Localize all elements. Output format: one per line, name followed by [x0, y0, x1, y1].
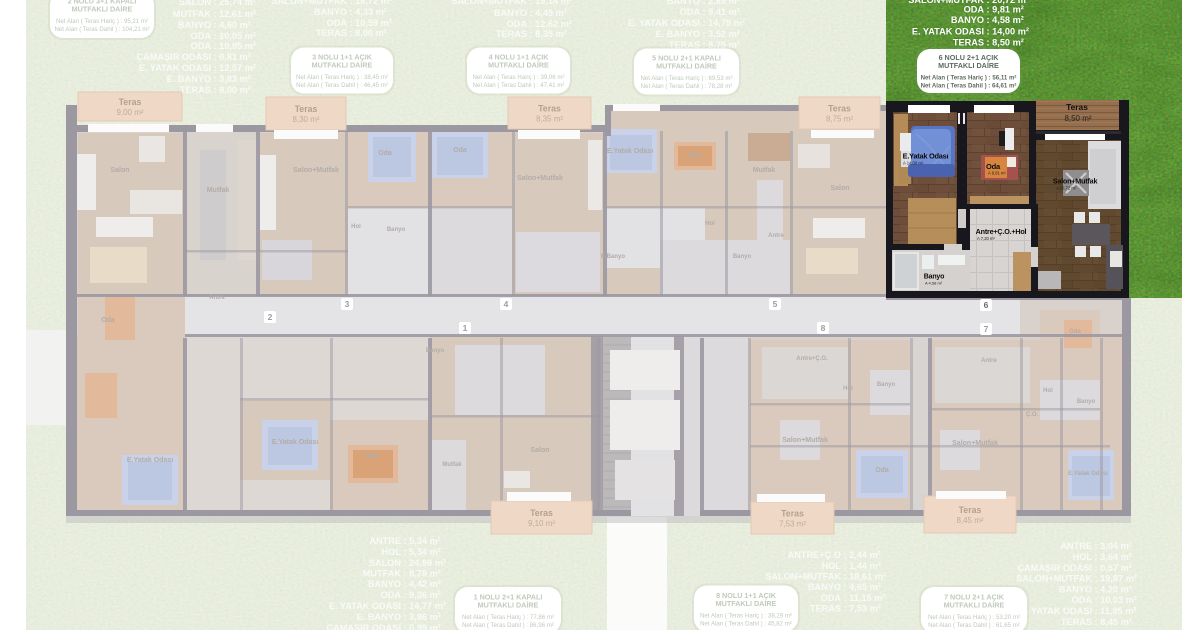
- svg-text:E.Yatak Odası: E.Yatak Odası: [903, 152, 949, 161]
- svg-text:: 4,42 m²: : 4,42 m²: [401, 579, 441, 589]
- svg-text:: 14,00 m²: : 14,00 m²: [984, 27, 1029, 37]
- svg-text:: 2,89 m²: : 2,89 m²: [700, 0, 740, 6]
- svg-text:Net Alan ( Teras Hariç ) : 95,: Net Alan ( Teras Hariç ) : 95,21 m²: [56, 18, 148, 25]
- svg-text:TERAS: TERAS: [180, 85, 211, 95]
- svg-text:Net Alan ( Teras Dahil ) : 61,: Net Alan ( Teras Dahil ) : 61,65 m²: [928, 622, 1020, 629]
- svg-text:7: 7: [984, 324, 989, 334]
- svg-text:BANYO: BANYO: [314, 7, 347, 17]
- svg-text:Net Alan ( Teras Dahil ) : 104: Net Alan ( Teras Dahil ) : 104,21 m²: [54, 26, 149, 33]
- svg-text:1: 1: [463, 323, 468, 333]
- svg-text:: 3,83 m²: : 3,83 m²: [211, 74, 251, 84]
- svg-text:Teras: Teras: [828, 104, 851, 114]
- svg-text:Oda: Oda: [875, 467, 889, 474]
- svg-text:Salon: Salon: [530, 447, 549, 454]
- svg-text:Net Alan ( Teras Dahil ) : 86,: Net Alan ( Teras Dahil ) : 86,96 m²: [462, 622, 554, 629]
- svg-text:: 8,00 m²: : 8,00 m²: [347, 28, 387, 38]
- svg-text:HOL: HOL: [382, 547, 402, 557]
- svg-text:Hol: Hol: [351, 224, 361, 230]
- svg-text:8,30 m²: 8,30 m²: [292, 115, 319, 124]
- svg-text:Banyo: Banyo: [924, 274, 944, 281]
- svg-text:TERAS: TERAS: [316, 28, 347, 38]
- svg-text:: 9,36 m²: : 9,36 m²: [401, 590, 441, 600]
- svg-text:: 5,34 m²: : 5,34 m²: [401, 547, 441, 557]
- svg-text:ANTRE: ANTRE: [1060, 541, 1092, 551]
- svg-text:Net Alan ( Teras Hariç ) : 69,: Net Alan ( Teras Hariç ) : 69,53 m²: [640, 75, 732, 82]
- svg-text:Teras: Teras: [959, 505, 982, 515]
- svg-text:BANYO: BANYO: [178, 20, 211, 30]
- svg-text:TERAS: TERAS: [953, 38, 984, 48]
- svg-text:6: 6: [984, 300, 989, 310]
- svg-text:BANYO: BANYO: [667, 0, 700, 6]
- svg-text:MUTFAK: MUTFAK: [173, 9, 212, 19]
- svg-text:Net Alan ( Teras Hariç ) : 38,: Net Alan ( Teras Hariç ) : 38,45 m²: [296, 74, 388, 81]
- svg-text:ODA: ODA: [191, 31, 212, 41]
- svg-text:ODA: ODA: [381, 590, 402, 600]
- svg-text:Net Alan ( Teras Hariç ) : 77,: Net Alan ( Teras Hariç ) : 77,86 m²: [462, 614, 554, 621]
- svg-text:Teras: Teras: [781, 509, 804, 519]
- svg-text:: 12,62 m²: : 12,62 m²: [527, 19, 572, 29]
- svg-text:8: 8: [821, 323, 826, 333]
- svg-text:Net Alan ( Teras Dahil ) : 64,: Net Alan ( Teras Dahil ) : 64,61 m²: [921, 83, 1017, 90]
- svg-text:: 10,03 m²: : 10,03 m²: [1092, 595, 1137, 605]
- svg-text:Net Alan ( Teras Hariç ) : 38,: Net Alan ( Teras Hariç ) : 38,29 m²: [700, 613, 792, 620]
- svg-text:TERAS: TERAS: [1061, 617, 1092, 627]
- svg-text:2: 2: [268, 312, 273, 322]
- svg-text:: 18,61 m²: : 18,61 m²: [841, 572, 886, 582]
- svg-text:Oda: Oda: [687, 152, 701, 159]
- svg-text:: 4,60 m²: : 4,60 m²: [211, 20, 251, 30]
- svg-text:Net Alan ( Teras Dahil ) : 46,: Net Alan ( Teras Dahil ) : 46,45 m²: [296, 82, 388, 89]
- svg-text:Oda: Oda: [101, 317, 115, 324]
- svg-text:Ç.O.: Ç.O.: [1026, 412, 1039, 418]
- svg-text:BANYO: BANYO: [808, 582, 841, 592]
- svg-text:E.Yatak Odası: E.Yatak Odası: [1068, 471, 1108, 477]
- svg-text:9,10 m²: 9,10 m²: [528, 519, 555, 528]
- svg-text:: 2,44 m²: : 2,44 m²: [841, 550, 881, 560]
- svg-text:: 0,99 m²: : 0,99 m²: [401, 623, 441, 630]
- svg-text:ANTRE+Ç.O: ANTRE+Ç.O: [788, 550, 841, 560]
- svg-text:BANYO: BANYO: [951, 15, 984, 25]
- svg-text:SALON+MUTFAK: SALON+MUTFAK: [451, 0, 527, 6]
- svg-text:ODA: ODA: [680, 7, 701, 17]
- svg-text:E. BANYO: E. BANYO: [357, 612, 401, 622]
- svg-text:HOL: HOL: [822, 561, 842, 571]
- svg-text:Antre: Antre: [209, 295, 225, 301]
- svg-text:: 4,20 m²: : 4,20 m²: [1092, 585, 1132, 595]
- svg-text:MUTFAKLI DAİRE: MUTFAKLI DAİRE: [716, 599, 777, 608]
- svg-text:: 1,44 m²: : 1,44 m²: [841, 561, 881, 571]
- svg-text:SALON: SALON: [369, 558, 402, 568]
- svg-text:BANYO: BANYO: [368, 579, 401, 589]
- svg-text:Banyo: Banyo: [733, 254, 752, 260]
- svg-text:: 14,77 m²: : 14,77 m²: [401, 601, 446, 611]
- svg-text:Banyo: Banyo: [387, 227, 406, 233]
- svg-text:Net Alan ( Teras Dahil ) : 78,: Net Alan ( Teras Dahil ) : 78,28 m²: [641, 83, 733, 90]
- svg-text:Salon+Mutfak: Salon+Mutfak: [952, 440, 998, 447]
- svg-text:: 4,58 m²: : 4,58 m²: [984, 15, 1024, 25]
- svg-text:MUTFAKLI DAİRE: MUTFAKLI DAİRE: [312, 61, 373, 70]
- svg-text:: 4,65 m²: : 4,65 m²: [841, 582, 881, 592]
- svg-text:MUTFAKLI DAİRE: MUTFAKLI DAİRE: [72, 5, 133, 14]
- svg-text:E. YATAK ODASI: E. YATAK ODASI: [1020, 606, 1092, 616]
- svg-text:Net Alan ( Teras Hariç ) : 53,: Net Alan ( Teras Hariç ) : 53,20 m²: [928, 614, 1020, 621]
- svg-text:Teras: Teras: [119, 97, 142, 107]
- svg-text:4: 4: [504, 299, 509, 309]
- svg-text:Hol: Hol: [705, 221, 715, 227]
- svg-text:: 3,64 m²: : 3,64 m²: [1092, 552, 1132, 562]
- svg-text:: 9,41 m²: : 9,41 m²: [700, 7, 740, 17]
- svg-text:A 4,58 m²: A 4,58 m²: [925, 281, 943, 286]
- svg-text:: 10,59 m²: : 10,59 m²: [347, 18, 392, 28]
- svg-text:MUTFAKLI DAİRE: MUTFAKLI DAİRE: [944, 601, 1005, 610]
- svg-text:Teras: Teras: [530, 508, 553, 518]
- svg-text:: 3,52 m²: : 3,52 m²: [700, 29, 740, 39]
- svg-text:E.Banyo: E.Banyo: [601, 254, 625, 260]
- svg-text:Banyo: Banyo: [1077, 399, 1096, 405]
- svg-text:BANYO: BANYO: [1059, 585, 1092, 595]
- svg-text:E. YATAK ODASI: E. YATAK ODASI: [912, 27, 984, 37]
- svg-text:8,35 m²: 8,35 m²: [536, 115, 563, 124]
- svg-text:Salon+Mutfak: Salon+Mutfak: [293, 167, 339, 174]
- svg-text:: 8,50 m²: : 8,50 m²: [984, 38, 1024, 48]
- svg-text:SALON+MUTFAK: SALON+MUTFAK: [1016, 574, 1092, 584]
- svg-text:: 4,33 m²: : 4,33 m²: [347, 7, 387, 17]
- svg-text:Salon: Salon: [830, 185, 849, 192]
- svg-text:ANTRE: ANTRE: [369, 536, 401, 546]
- svg-text:SALON+MUTFAK: SALON+MUTFAK: [271, 0, 347, 6]
- svg-text:Oda: Oda: [365, 453, 379, 460]
- svg-text:: 0,57 m²: : 0,57 m²: [1092, 563, 1132, 573]
- svg-text:Antre+Ç.O.+Hol: Antre+Ç.O.+Hol: [976, 227, 1027, 236]
- svg-text:: 14,79 m²: : 14,79 m²: [700, 18, 745, 28]
- svg-text:8,75 m²: 8,75 m²: [826, 115, 853, 124]
- svg-text:ODA: ODA: [1072, 595, 1093, 605]
- svg-text:Mutfak: Mutfak: [442, 462, 462, 468]
- svg-text:: 5,34 m²: : 5,34 m²: [401, 536, 441, 546]
- svg-text:TERAS: TERAS: [496, 29, 527, 39]
- svg-text:: 19,14 m²: : 19,14 m²: [527, 0, 572, 6]
- svg-text:Salon: Salon: [110, 167, 129, 174]
- svg-text:: 3,04 m²: : 3,04 m²: [1092, 541, 1132, 551]
- svg-text:Hol: Hol: [843, 386, 853, 392]
- svg-text:BANYO: BANYO: [494, 8, 527, 18]
- svg-text:MUTFAKLI DAİRE: MUTFAKLI DAİRE: [478, 601, 539, 610]
- svg-text:ODA: ODA: [507, 19, 528, 29]
- svg-text:Mutfak: Mutfak: [753, 167, 776, 174]
- svg-text:: 11,85 m²: : 11,85 m²: [1092, 606, 1136, 616]
- svg-text:ÇAMAŞIR ODASI: ÇAMAŞIR ODASI: [326, 623, 401, 630]
- svg-text:9,00 m²: 9,00 m²: [116, 108, 143, 117]
- svg-text:Mutfak: Mutfak: [207, 187, 230, 194]
- svg-text:ODA: ODA: [821, 593, 842, 603]
- svg-text:Banyo: Banyo: [877, 382, 896, 388]
- svg-text:Salon+Mutfak: Salon+Mutfak: [782, 437, 828, 444]
- svg-text:: 3,86 m²: : 3,86 m²: [401, 612, 441, 622]
- svg-text:: 8,35 m²: : 8,35 m²: [527, 29, 567, 39]
- svg-text:Hol: Hol: [1043, 388, 1053, 394]
- svg-text:: 25,74 m²: : 25,74 m²: [211, 0, 256, 7]
- svg-text:: 19,87 m²: : 19,87 m²: [1092, 574, 1137, 584]
- svg-text:Net Alan ( Teras Hariç ) : 39,: Net Alan ( Teras Hariç ) : 39,06 m²: [472, 74, 564, 81]
- svg-text:Oda: Oda: [1069, 329, 1081, 335]
- svg-text:Salon+Mutfak: Salon+Mutfak: [1053, 177, 1098, 186]
- svg-text:: 9,81 m²: : 9,81 m²: [984, 5, 1024, 15]
- svg-text:Oda: Oda: [453, 147, 467, 154]
- svg-text:8,50 m²: 8,50 m²: [1064, 114, 1091, 123]
- svg-text:MUTFAKLI DAİRE: MUTFAKLI DAİRE: [656, 62, 717, 71]
- svg-text:ODA: ODA: [964, 5, 985, 15]
- svg-text:Banyo: Banyo: [426, 348, 445, 354]
- svg-text:HOL: HOL: [1073, 552, 1093, 562]
- svg-text:A 14,00 m²: A 14,00 m²: [903, 161, 924, 166]
- svg-text:MUTFAK: MUTFAK: [363, 569, 402, 579]
- svg-text:: 11,15 m²: : 11,15 m²: [841, 593, 885, 603]
- svg-text:ODA: ODA: [327, 18, 348, 28]
- svg-text:Antre+Ç.O.: Antre+Ç.O.: [796, 356, 828, 362]
- svg-text:A 20,72 m²: A 20,72 m²: [1056, 186, 1077, 191]
- svg-text:SALON+MUTFAK: SALON+MUTFAK: [765, 572, 841, 582]
- svg-text:5: 5: [773, 299, 778, 309]
- svg-text:: 4,49 m²: : 4,49 m²: [527, 8, 567, 18]
- svg-text:E. BANYO: E. BANYO: [167, 74, 211, 84]
- svg-text:E. YATAK ODASI: E. YATAK ODASI: [628, 18, 700, 28]
- svg-text:8,45 m²: 8,45 m²: [956, 516, 983, 525]
- svg-text:E. YATAK ODASI: E. YATAK ODASI: [329, 601, 401, 611]
- svg-text:A 9,81 m²: A 9,81 m²: [988, 171, 1007, 176]
- svg-text:Antre: Antre: [981, 358, 997, 364]
- svg-text:: 8,79 m²: : 8,79 m²: [401, 569, 441, 579]
- svg-text:Net Alan ( Teras Dahil ) : 47,: Net Alan ( Teras Dahil ) : 47,41 m²: [473, 82, 565, 89]
- svg-text:SALON: SALON: [179, 0, 212, 7]
- svg-text:Net Alan ( Teras Hariç ) : 56,: Net Alan ( Teras Hariç ) : 56,11 m²: [921, 75, 1017, 82]
- svg-text:: 24,99 m²: : 24,99 m²: [401, 558, 446, 568]
- svg-text:Teras: Teras: [538, 104, 561, 114]
- svg-text:: 10,05 m²: : 10,05 m²: [211, 31, 256, 41]
- svg-text:E. BANYO: E. BANYO: [656, 29, 700, 39]
- svg-text:Antre: Antre: [768, 233, 784, 239]
- svg-text:Salon+Mutfak: Salon+Mutfak: [517, 175, 563, 182]
- svg-text:ÇAMAŞIR ODASI: ÇAMAŞIR ODASI: [1017, 563, 1092, 573]
- svg-text:: 0,81 m²: : 0,81 m²: [211, 52, 251, 62]
- svg-text:E. YATAK ODASI: E. YATAK ODASI: [139, 63, 211, 73]
- svg-text:E.Yatak Odası: E.Yatak Odası: [607, 148, 653, 155]
- svg-text:E.Yatak Odası: E.Yatak Odası: [272, 439, 318, 446]
- svg-text:Teras: Teras: [1066, 102, 1088, 112]
- svg-text:MUTFAKLI DAİRE: MUTFAKLI DAİRE: [488, 61, 549, 70]
- svg-text:E.Yatak Odası: E.Yatak Odası: [127, 457, 173, 464]
- svg-text:ODA: ODA: [191, 41, 212, 51]
- svg-text:7,53 m²: 7,53 m²: [779, 520, 806, 529]
- svg-text:: 10,95 m²: : 10,95 m²: [211, 41, 256, 51]
- svg-text:A 7,20 m²: A 7,20 m²: [977, 236, 996, 241]
- svg-text:: 7,53 m²: : 7,53 m²: [841, 604, 881, 614]
- svg-text:: 8,45 m²: : 8,45 m²: [1092, 617, 1132, 627]
- svg-text:: 12,57 m²: : 12,57 m²: [211, 63, 256, 73]
- svg-text:3: 3: [345, 299, 350, 309]
- svg-text:: 18,72 m²: : 18,72 m²: [347, 0, 392, 6]
- svg-text:: 9,00 m²: : 9,00 m²: [211, 85, 251, 95]
- svg-text:: 12,61 m²: : 12,61 m²: [211, 9, 256, 19]
- svg-text:TERAS: TERAS: [810, 604, 841, 614]
- svg-text:ÇAMAŞIR ODASI: ÇAMAŞIR ODASI: [136, 52, 211, 62]
- svg-text:Net Alan ( Teras Dahil ) : 45,: Net Alan ( Teras Dahil ) : 45,82 m²: [700, 621, 792, 628]
- svg-text:MUTFAKLI DAİRE: MUTFAKLI DAİRE: [938, 61, 999, 70]
- svg-text:Oda: Oda: [378, 150, 392, 157]
- svg-text:Teras: Teras: [295, 104, 318, 114]
